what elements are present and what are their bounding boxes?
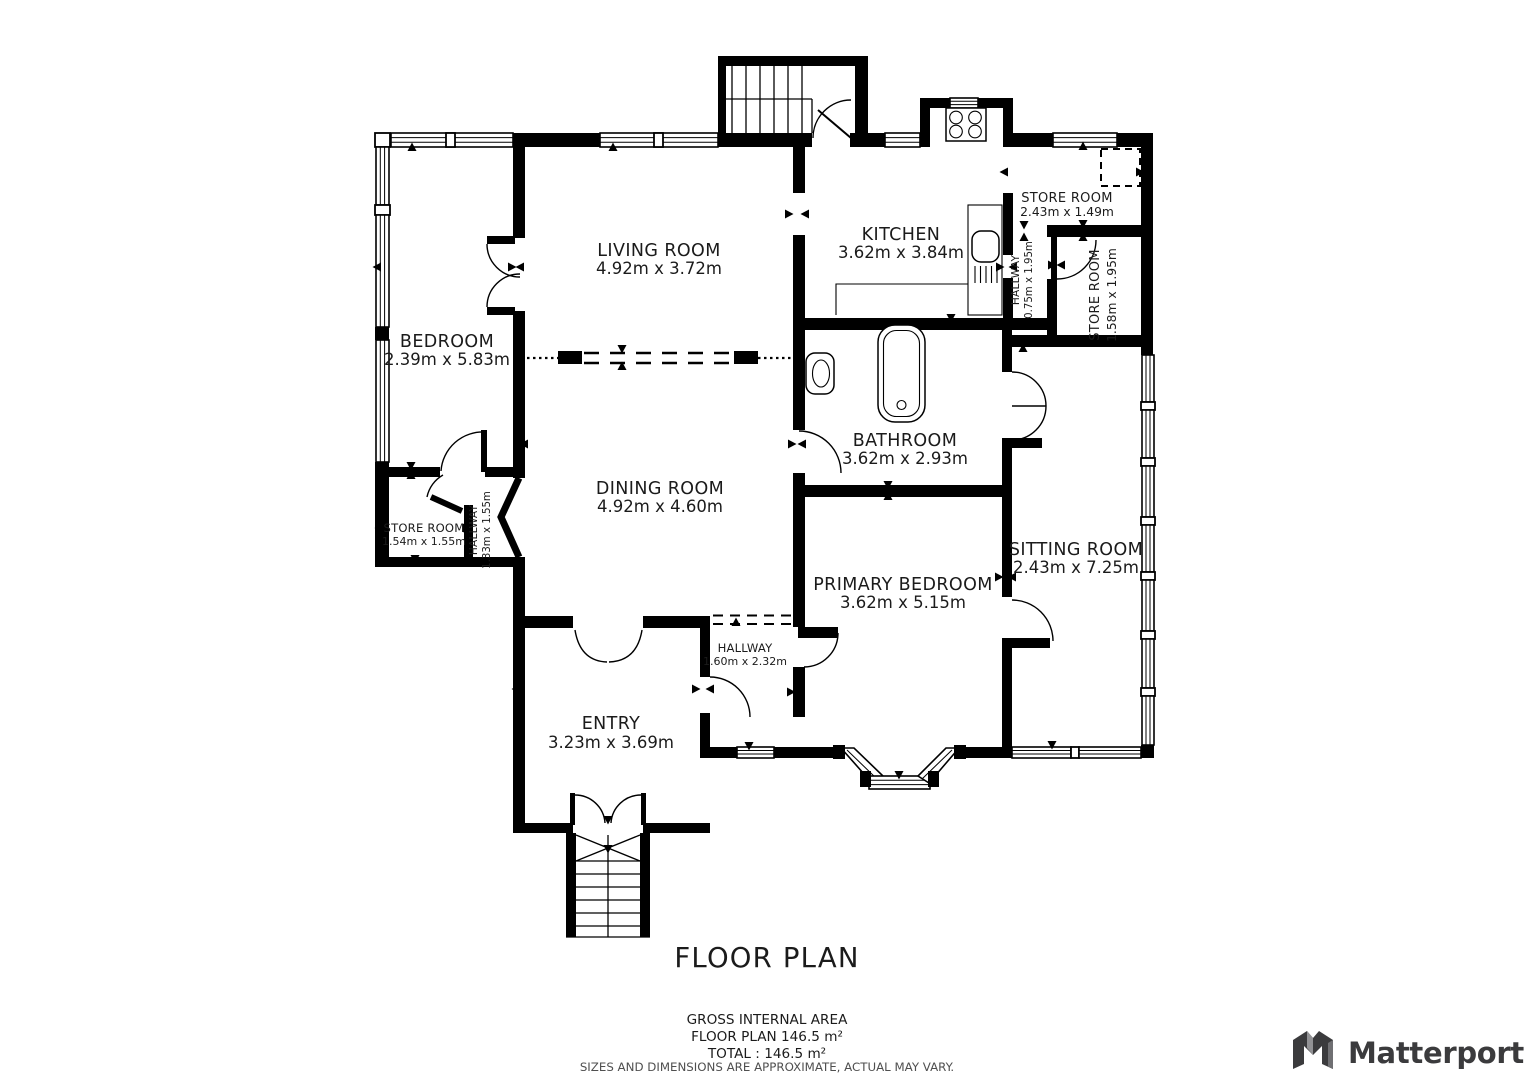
staircase-top	[726, 66, 851, 138]
matterport-logo: Matterport	[1293, 1031, 1524, 1070]
room-label-entry: ENTRY	[582, 714, 641, 734]
room-label-sitting: SITTING ROOM	[1009, 540, 1143, 560]
room-dims-hallway-160: 1.60m x 2.32m	[703, 655, 787, 668]
bathroom-sitting-door-a	[1012, 372, 1046, 406]
bedroom-door	[441, 432, 485, 471]
bathroom-sitting-door-b	[1012, 406, 1046, 440]
footer: FLOOR PLAN GROSS INTERNAL AREA FLOOR PLA…	[580, 942, 954, 1074]
room-label-store-158: STORE ROOM	[1088, 249, 1103, 341]
room-dims-hallway-075: 0.75m x 1.95m	[1024, 241, 1035, 319]
toilet-icon	[806, 353, 834, 394]
room-label-hallway-075: HALLWAY	[1010, 255, 1022, 306]
room-label-hallway-133: HALLWAY	[468, 505, 480, 556]
storeroom-door	[427, 475, 443, 497]
bathroom-door	[799, 431, 841, 473]
bathtub-icon	[878, 325, 925, 422]
hallway-primary-door	[804, 633, 838, 667]
water-tank-dashed	[1101, 149, 1140, 186]
footer-floorplan-area: FLOOR PLAN 146.5 m²	[691, 1029, 843, 1045]
footer-area-heading: GROSS INTERNAL AREA	[687, 1012, 848, 1028]
entry-top-door-left	[575, 630, 607, 662]
room-label-bedroom: BEDROOM	[400, 332, 494, 352]
room-dims-bedroom: 2.39m x 5.83m	[384, 350, 510, 369]
room-dims-sitting: 2.43m x 7.25m	[1013, 558, 1139, 577]
room-dims-entry: 3.23m x 3.69m	[548, 733, 674, 752]
room-dims-store-top: 2.43m x 1.49m	[1020, 205, 1114, 219]
entry-hallway-door	[710, 677, 750, 717]
room-dims-store-154: 1.54m x 1.55m	[382, 535, 466, 548]
room-dims-living: 4.92m x 3.72m	[596, 259, 722, 278]
room-label-bathroom: BATHROOM	[853, 431, 957, 451]
zigzag-wall	[501, 478, 519, 557]
entry-top-door-right	[609, 630, 642, 662]
room-label-store-top: STORE ROOM	[1021, 191, 1113, 206]
room-dims-primary: 3.62m x 5.15m	[840, 593, 966, 612]
entry-exterior-door-left	[575, 795, 605, 823]
room-dims-hallway-133: 1.33m x 1.55m	[482, 491, 493, 569]
room-label-living: LIVING ROOM	[597, 241, 720, 261]
entry-exterior-door-right	[611, 795, 641, 823]
room-label-store-154: STORE ROOM	[384, 521, 465, 535]
stove-icon	[946, 108, 986, 141]
room-label-hallway-160: HALLWAY	[718, 641, 774, 655]
bedroom-french-door-bottom	[487, 274, 520, 307]
primary-sitting-door	[1012, 600, 1053, 641]
room-dims-store-158: 1.58m x 1.95m	[1105, 248, 1119, 342]
room-label-primary: PRIMARY BEDROOM	[813, 575, 993, 595]
brand-wordmark: Matterport	[1348, 1036, 1524, 1070]
room-label-dining: DINING ROOM	[596, 479, 724, 499]
footer-disclaimer: SIZES AND DIMENSIONS ARE APPROXIMATE, AC…	[580, 1060, 954, 1074]
room-dims-dining: 4.92m x 4.60m	[597, 497, 723, 516]
room-dims-kitchen: 3.62m x 3.84m	[838, 243, 964, 262]
matterport-icon	[1293, 1031, 1333, 1069]
page-title: FLOOR PLAN	[674, 942, 859, 974]
bedroom-french-door-top	[487, 244, 520, 277]
room-dims-bathroom: 3.62m x 2.93m	[842, 449, 968, 468]
room-label-kitchen: KITCHEN	[862, 225, 941, 245]
floor-plan-canvas: LIVING ROOM 4.92m x 3.72m KITCHEN 3.62m …	[0, 0, 1536, 1086]
